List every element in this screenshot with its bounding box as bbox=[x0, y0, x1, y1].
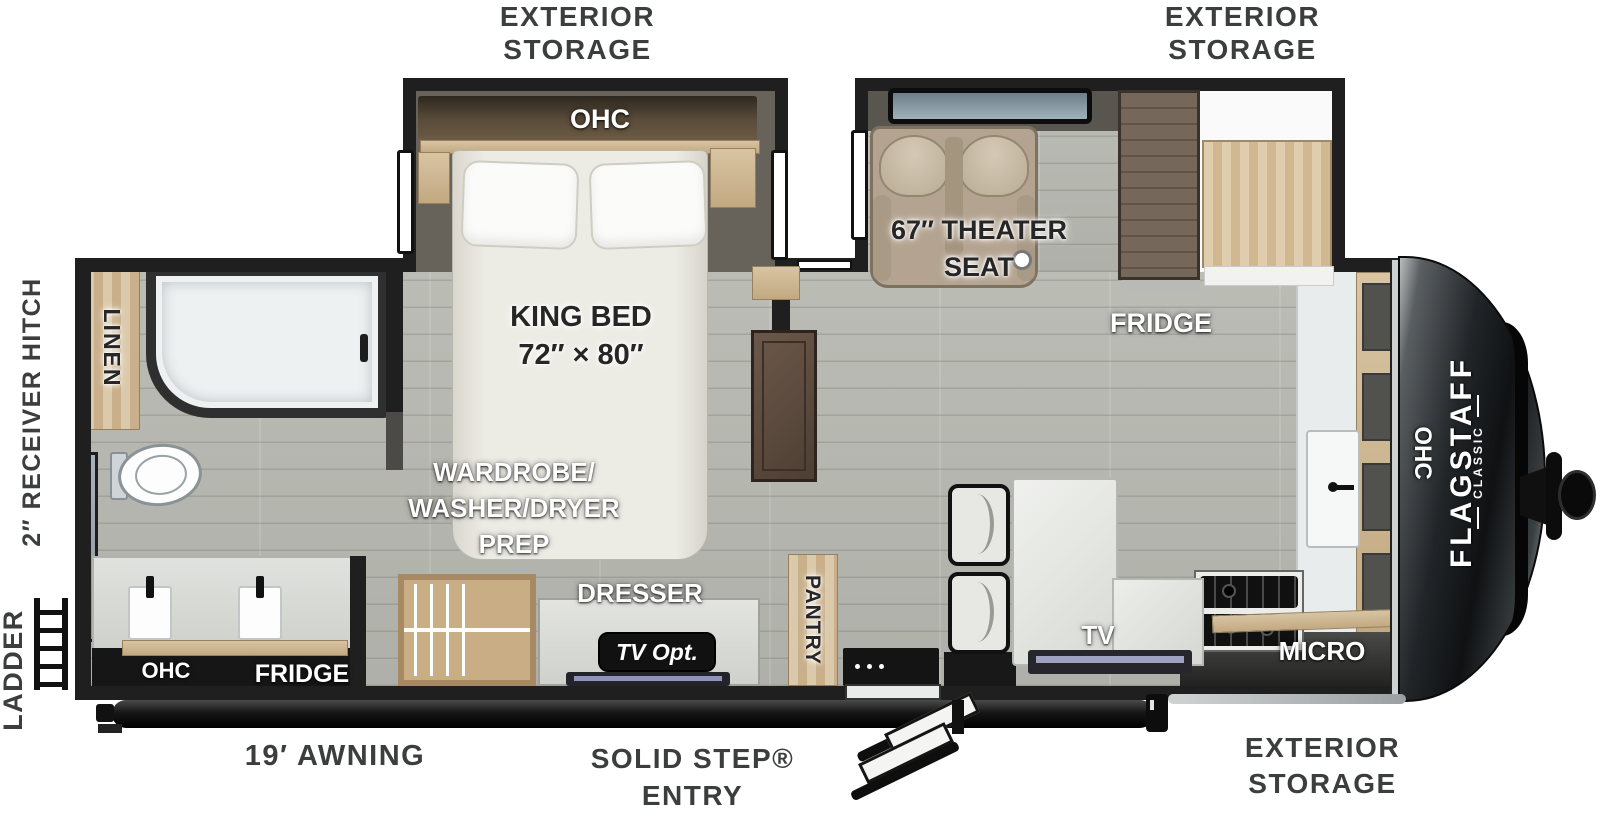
door-panel-icon bbox=[762, 341, 806, 471]
label-exterior-storage-bottom-right: EXTERIOR STORAGE bbox=[1215, 730, 1430, 802]
label-ladder: LADDER bbox=[0, 590, 26, 750]
awning-bar bbox=[112, 700, 1154, 728]
label-pantry: PANTRY bbox=[800, 560, 824, 680]
shower bbox=[146, 266, 388, 418]
label-exterior-storage-top-right: EXTERIOR STORAGE bbox=[1135, 0, 1350, 66]
chair bbox=[948, 484, 1010, 566]
utility-box bbox=[944, 652, 1016, 686]
pillow-icon bbox=[461, 160, 580, 250]
mat-dot-icon bbox=[879, 664, 884, 669]
label-exterior-storage-top-left: EXTERIOR STORAGE bbox=[470, 0, 685, 66]
slide-window-icon bbox=[888, 88, 1092, 124]
hitch-jack-wheel-icon bbox=[1558, 470, 1596, 520]
fridge-cabinet bbox=[1118, 90, 1200, 280]
brand-series: CLASSIC bbox=[1471, 425, 1485, 499]
label-king-bed: KING BED 72″ × 80″ bbox=[476, 298, 686, 374]
rear-wall bbox=[75, 258, 91, 700]
burner-icon bbox=[1222, 584, 1236, 598]
fridge-top-box bbox=[1202, 140, 1332, 268]
label-tv: TV bbox=[1058, 620, 1138, 651]
vanity-faucet-left-icon bbox=[146, 576, 154, 598]
label-bath-fridge: FRIDGE bbox=[240, 660, 364, 689]
label-bath-ohc: OHC bbox=[126, 658, 206, 684]
mat-dot-icon bbox=[867, 664, 872, 669]
shower-pan bbox=[162, 282, 372, 402]
label-awning: 19′ AWNING bbox=[220, 740, 450, 773]
entry-threshold bbox=[845, 684, 941, 700]
label-receiver-hitch: 2″ RECEIVER HITCH bbox=[18, 269, 46, 555]
brand-rule-icon bbox=[1477, 395, 1479, 417]
awning-end-notch-icon bbox=[1150, 700, 1154, 710]
label-linen: LINEN bbox=[99, 278, 125, 418]
chair bbox=[948, 572, 1010, 654]
fridge-ledge bbox=[1204, 266, 1334, 286]
faucet-icon bbox=[1336, 485, 1354, 490]
awning-bracket-left2-icon bbox=[98, 724, 122, 733]
tv-opt-badge: TV Opt. bbox=[598, 632, 716, 672]
nightstand-left bbox=[418, 152, 450, 204]
mid-wall-window bbox=[797, 260, 852, 270]
floorplan-canvas: TV Opt. bbox=[0, 0, 1600, 817]
seat-back-icon bbox=[959, 135, 1029, 197]
step-post-icon bbox=[952, 700, 964, 734]
label-dresser: DRESSER bbox=[560, 578, 720, 609]
dresser-tv-screen bbox=[574, 676, 722, 681]
brand-series-row: CLASSIC bbox=[1471, 312, 1485, 612]
nightstand-right bbox=[710, 148, 756, 208]
fridge-side-shelf bbox=[1122, 280, 1200, 294]
wardrobe-shelf-icon bbox=[404, 628, 530, 632]
label-theater-seat: 67″ THEATER SEAT bbox=[874, 212, 1084, 286]
wardrobe-cabinet bbox=[398, 574, 536, 686]
bedroom-corner-shelf bbox=[752, 266, 800, 300]
pillow-icon bbox=[589, 160, 708, 250]
toilet-bowl bbox=[133, 452, 189, 497]
brand-rule-icon bbox=[1477, 507, 1479, 529]
ladder-icon bbox=[32, 598, 70, 690]
front-bottom-trim bbox=[1168, 694, 1406, 704]
entry-door-mat bbox=[843, 648, 939, 686]
bedroom-wardrobe-door bbox=[751, 330, 817, 482]
vanity-wood-edge bbox=[122, 640, 348, 656]
bedroom-window-left-icon bbox=[397, 150, 414, 254]
label-micro: MICRO bbox=[1262, 636, 1382, 667]
bedroom-window-right-icon bbox=[771, 150, 788, 260]
stove-grate-icon bbox=[1200, 576, 1298, 608]
tv-opt-label: TV Opt. bbox=[616, 639, 698, 666]
bath-bedroom-wall bbox=[386, 262, 403, 412]
theater-window-left-icon bbox=[851, 130, 868, 240]
chair-cushion-icon bbox=[960, 494, 994, 554]
mat-dot-icon bbox=[855, 664, 860, 669]
vanity-faucet-right-icon bbox=[256, 576, 264, 598]
awning-bracket-left-icon bbox=[96, 704, 114, 722]
top-wall-rear bbox=[75, 258, 405, 272]
label-solid-step-entry: SOLID STEP® ENTRY bbox=[565, 740, 820, 814]
kitchen-sink bbox=[1306, 430, 1360, 548]
shower-faucet-icon bbox=[360, 334, 368, 362]
chair-cushion-icon bbox=[960, 582, 994, 642]
label-fridge-main: FRIDGE bbox=[1096, 308, 1226, 339]
label-bedroom-ohc: OHC bbox=[560, 104, 640, 135]
island-tv-screen bbox=[1036, 656, 1184, 663]
brand-block: FLAGSTAFF CLASSIC bbox=[1427, 312, 1497, 612]
label-wardrobe-prep: WARDROBE/ WASHER/DRYER PREP bbox=[388, 454, 640, 562]
seat-back-icon bbox=[879, 135, 949, 197]
